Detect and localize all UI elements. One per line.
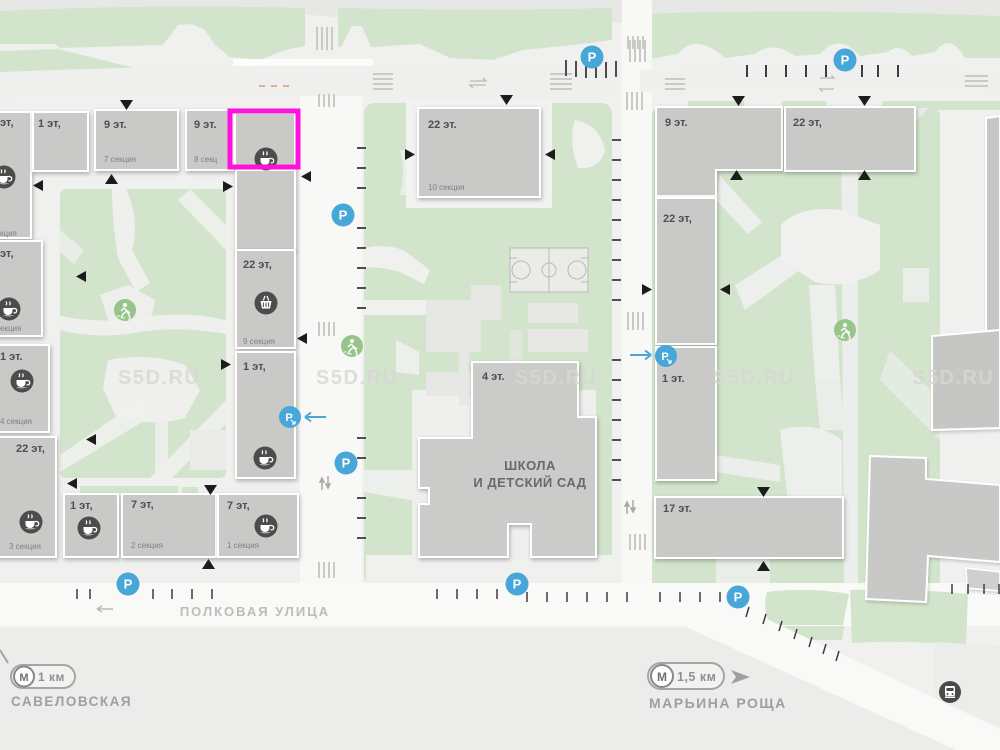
svg-text:S5D.RU: S5D.RU [912,367,994,389]
svg-text:22 эт,: 22 эт, [243,259,272,271]
svg-text:1 эт,: 1 эт, [70,500,93,512]
svg-text:9 эт.: 9 эт. [104,119,127,131]
svg-text:7 эт,: 7 эт, [227,500,250,512]
svg-text:1 секция: 1 секция [227,541,259,550]
svg-text:9 секция: 9 секция [243,337,275,346]
svg-text:9 эт.: 9 эт. [665,117,688,129]
svg-text:кция: кция [0,229,17,238]
svg-text:S5D.RU: S5D.RU [118,367,200,389]
svg-text:10 секция: 10 секция [428,183,464,192]
svg-text:САВЕЛОВСКАЯ: САВЕЛОВСКАЯ [11,694,132,709]
svg-text:1 эт.: 1 эт. [662,373,685,385]
svg-text:ШКОЛА: ШКОЛА [504,458,556,473]
svg-text:22 эт,: 22 эт, [663,213,692,225]
svg-text:S5D.RU: S5D.RU [713,367,795,389]
svg-text:7 эт,: 7 эт, [131,499,154,511]
svg-text:М: М [657,670,667,684]
svg-text:7 секция: 7 секция [104,155,136,164]
svg-text:1 эт,: 1 эт, [243,361,266,373]
svg-text:22 эт,: 22 эт, [793,117,822,129]
svg-text:S5D.RU: S5D.RU [316,367,398,389]
svg-text:эт,: эт, [0,117,14,129]
svg-text:ПОЛКОВАЯ УЛИЦА: ПОЛКОВАЯ УЛИЦА [180,604,330,619]
svg-text:екция: екция [0,324,21,333]
svg-text:3 секция: 3 секция [9,542,41,551]
svg-text:1 эт,: 1 эт, [38,118,61,130]
svg-text:1,5 км: 1,5 км [677,670,716,684]
svg-text:4 эт.: 4 эт. [482,371,505,383]
svg-text:эт,: эт, [0,248,14,260]
svg-text:8 секц: 8 секц [194,155,218,164]
svg-text:1 км: 1 км [38,670,65,684]
svg-text:9 эт.: 9 эт. [194,119,217,131]
svg-text:МАРЬИНА РОЩА: МАРЬИНА РОЩА [649,695,787,711]
svg-text:2 секция: 2 секция [131,541,163,550]
svg-text:1 эт.: 1 эт. [0,351,23,363]
svg-text:22 эт,: 22 эт, [16,443,45,455]
svg-text:4 секция: 4 секция [0,417,32,426]
svg-text:17 эт.: 17 эт. [663,503,692,515]
svg-text:М: М [19,672,28,684]
svg-text:S5D.RU: S5D.RU [515,367,597,389]
svg-text:22 эт.: 22 эт. [428,119,457,131]
svg-text:И ДЕТСКИЙ САД: И ДЕТСКИЙ САД [473,475,586,490]
